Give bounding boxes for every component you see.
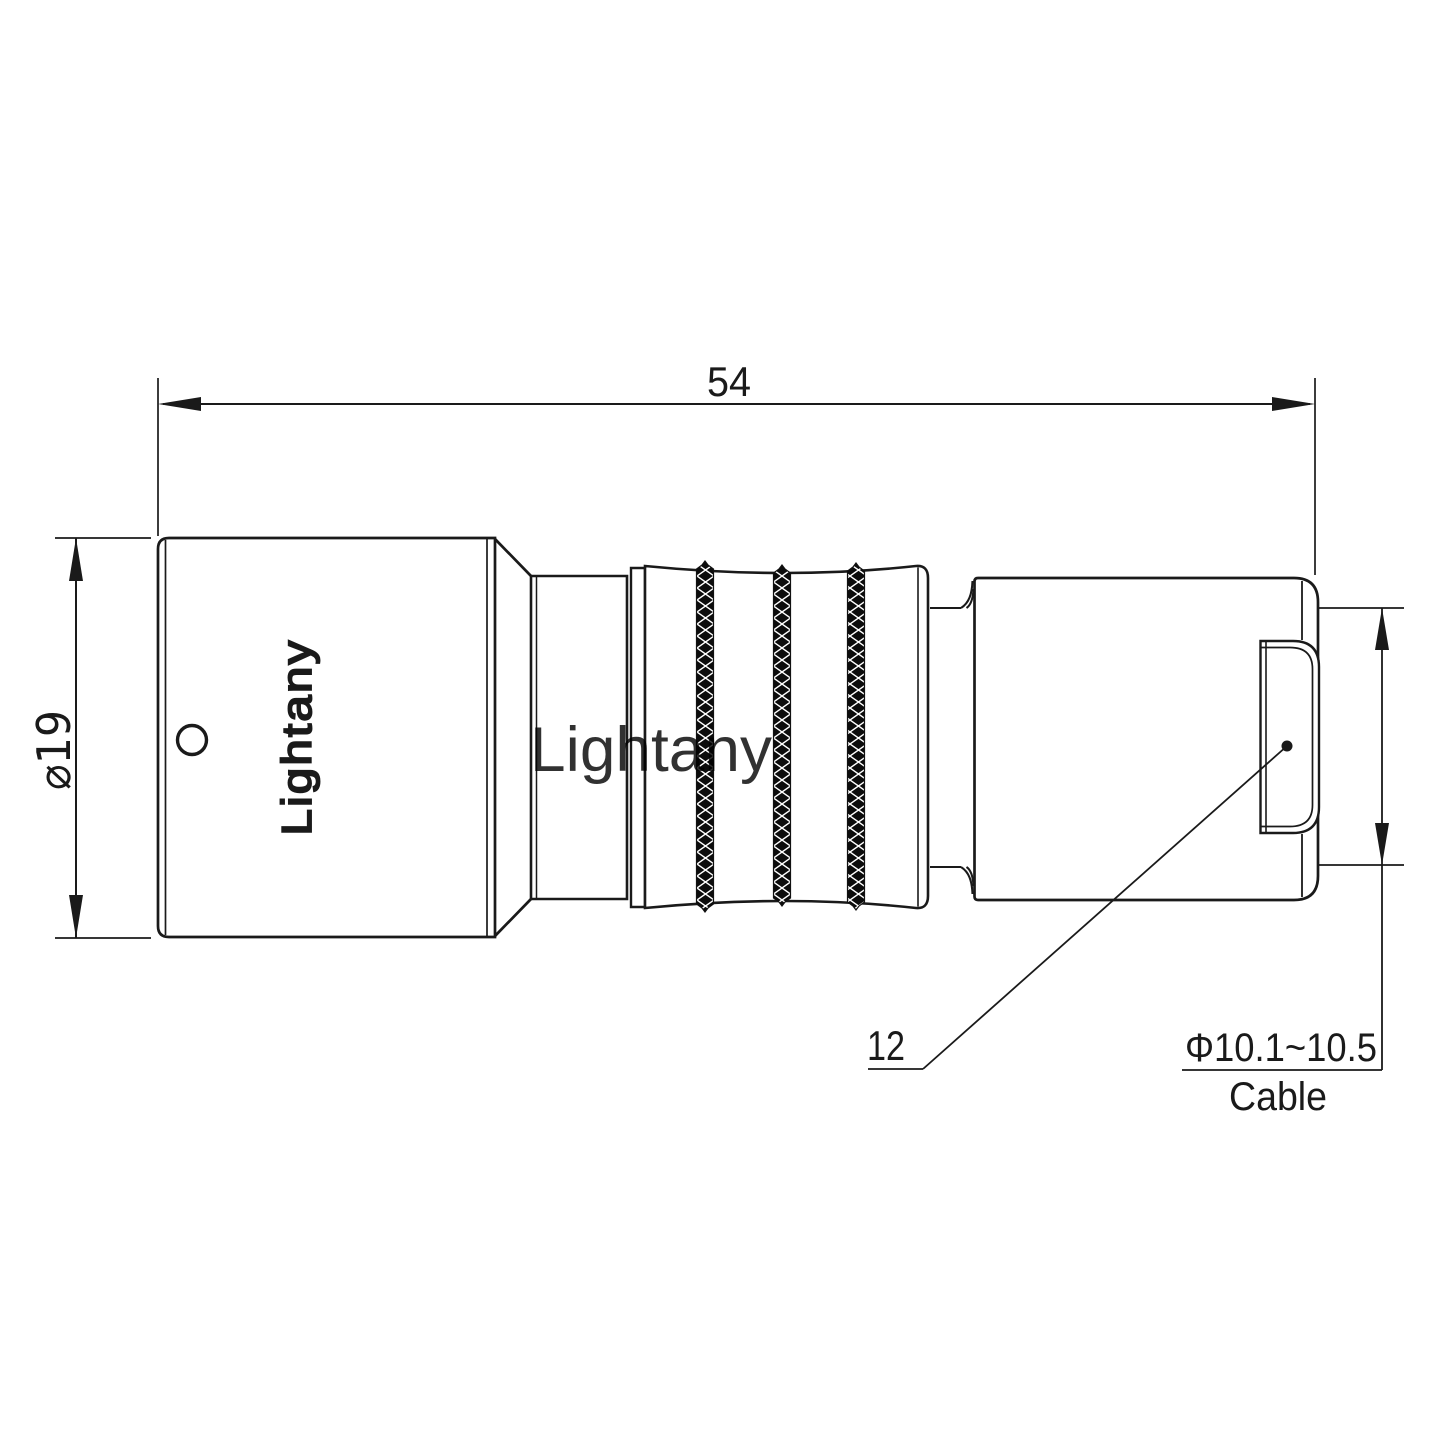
cable-bump-outer <box>1261 641 1320 833</box>
knurl-band-2 <box>774 565 791 906</box>
technical-drawing-canvas: 54 ⌀19 <box>0 0 1440 1440</box>
dim-cable-diameter-text: Φ10.1~10.5 <box>1185 1026 1377 1070</box>
arrowhead-left-icon <box>158 397 201 411</box>
arrowhead-down-icon <box>1375 823 1389 865</box>
dim-overall-length-text: 54 <box>707 358 751 405</box>
body-engraving-text: Lightany <box>273 639 320 836</box>
knurl-band-3 <box>848 563 865 910</box>
arrowhead-up-icon <box>69 538 83 581</box>
dim-cable-caption-text: Cable <box>1229 1075 1327 1119</box>
chamfer-bottom <box>495 899 531 936</box>
arrowhead-up-icon <box>1375 608 1389 650</box>
leader-12-text: 12 <box>867 1022 905 1069</box>
dim-body-diameter-text: ⌀19 <box>27 710 81 790</box>
chamfer-top <box>495 539 531 576</box>
arrowhead-right-icon <box>1272 397 1315 411</box>
watermark-text: Lightany <box>530 715 772 785</box>
groove <box>930 581 974 894</box>
front-shell-outline <box>158 538 495 937</box>
arrowhead-down-icon <box>69 895 83 938</box>
